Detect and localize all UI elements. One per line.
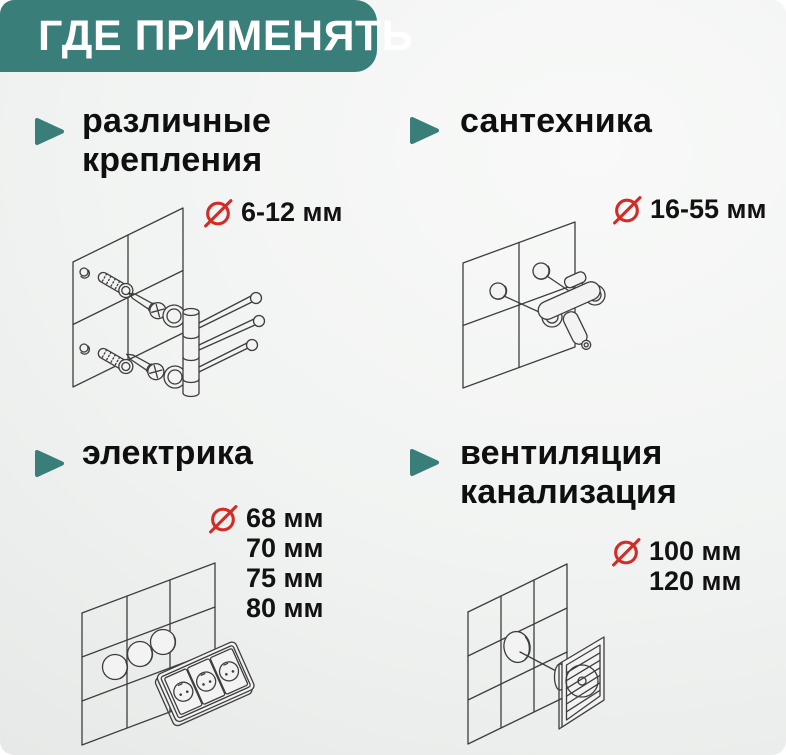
fasteners-illustration <box>55 195 355 425</box>
triangle-bullet-icon <box>34 449 65 478</box>
where-to-apply-infographic: ГДЕ ПРИМЕНЯТЬ различные крепления 6-12 м… <box>0 0 786 755</box>
diameter-icon <box>611 536 642 567</box>
section-title-line: крепления <box>82 141 271 180</box>
diameter-icon <box>612 194 643 225</box>
triangle-bullet-icon <box>409 448 440 477</box>
section-title-plumbing: сантехника <box>460 102 652 141</box>
section-title-line: вентиляция <box>460 434 677 473</box>
diameter-range-plumbing: 16-55 мм <box>612 194 767 225</box>
section-title-electrical: электрика <box>82 434 253 473</box>
header-banner: ГДЕ ПРИМЕНЯТЬ <box>0 0 377 72</box>
plumbing-illustration <box>445 215 725 425</box>
section-title-line: сантехника <box>460 102 652 141</box>
section-title-fasteners: различные крепления <box>82 102 271 180</box>
diameter-icon <box>208 503 239 534</box>
triangle-bullet-icon <box>409 116 440 145</box>
diameter-icon <box>203 197 234 228</box>
size-value: 16-55 мм <box>650 194 767 224</box>
size-value: 80 мм <box>246 593 323 623</box>
section-title-line: канализация <box>460 473 677 512</box>
triangle-bullet-icon <box>34 117 65 146</box>
diameter-list-ventilation: 100 мм 120 мм <box>611 536 742 596</box>
diameter-list-electrical: 68 мм 70 мм 75 мм 80 мм <box>208 503 323 623</box>
size-value: 70 мм <box>246 533 323 563</box>
section-title-line: различные <box>82 102 271 141</box>
section-title-line: электрика <box>82 434 253 473</box>
page-title: ГДЕ ПРИМЕНЯТЬ <box>38 12 413 61</box>
size-value: 75 мм <box>246 563 323 593</box>
diameter-range-fasteners: 6-12 мм <box>203 197 343 228</box>
size-value: 100 мм <box>649 536 742 566</box>
size-value: 6-12 мм <box>241 197 343 227</box>
size-value: 68 мм <box>246 503 323 533</box>
size-value: 120 мм <box>649 566 742 596</box>
section-title-ventilation: вентиляция канализация <box>460 434 677 512</box>
